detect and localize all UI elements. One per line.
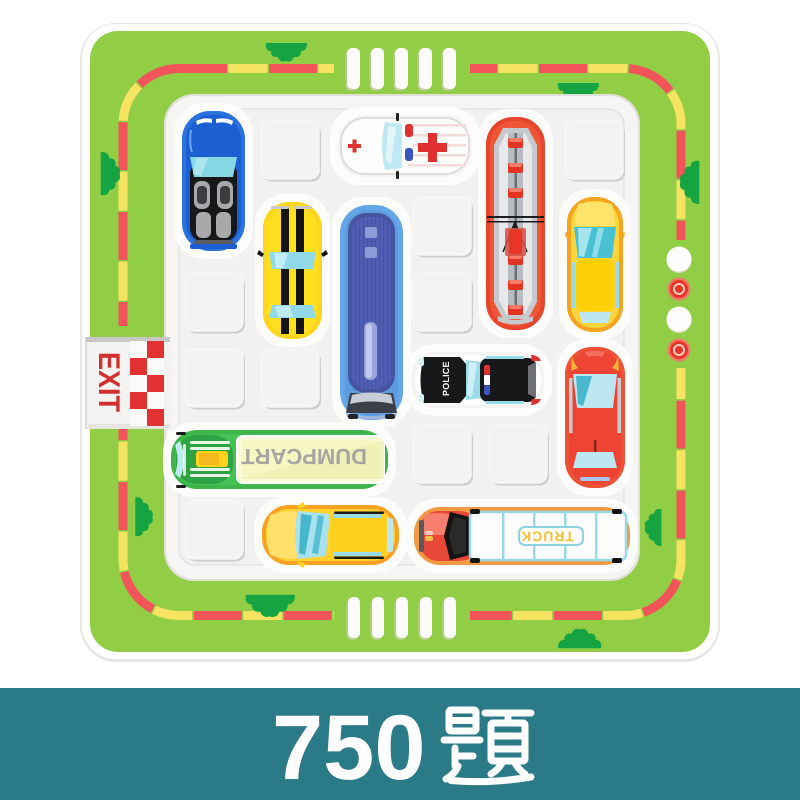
svg-text:TRUCK: TRUCK [520,529,574,545]
svg-text:DUMPCART: DUMPCART [241,444,367,469]
svg-text:EXIT: EXIT [92,352,125,412]
svg-text:750: 750 [272,697,426,799]
svg-text:POLICE: POLICE [441,361,451,396]
